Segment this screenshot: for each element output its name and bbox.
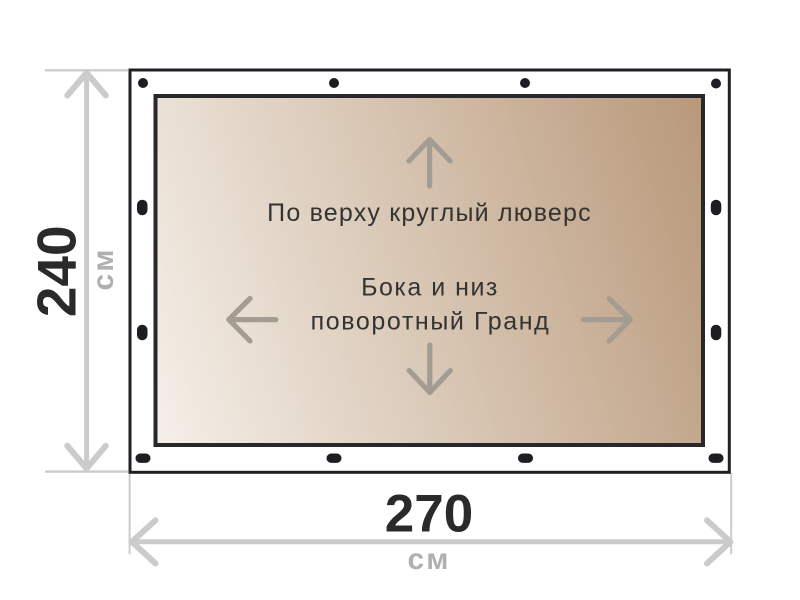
- svg-text:240: 240: [26, 225, 88, 317]
- svg-text:Бока и низ: Бока и низ: [361, 273, 499, 301]
- svg-text:см: см: [87, 248, 120, 291]
- svg-text:270: 270: [385, 485, 473, 544]
- svg-text:поворотный Гранд: поворотный Гранд: [311, 308, 551, 336]
- svg-text:По верху круглый люверс: По верху круглый люверс: [267, 199, 592, 227]
- svg-text:см: см: [408, 543, 451, 576]
